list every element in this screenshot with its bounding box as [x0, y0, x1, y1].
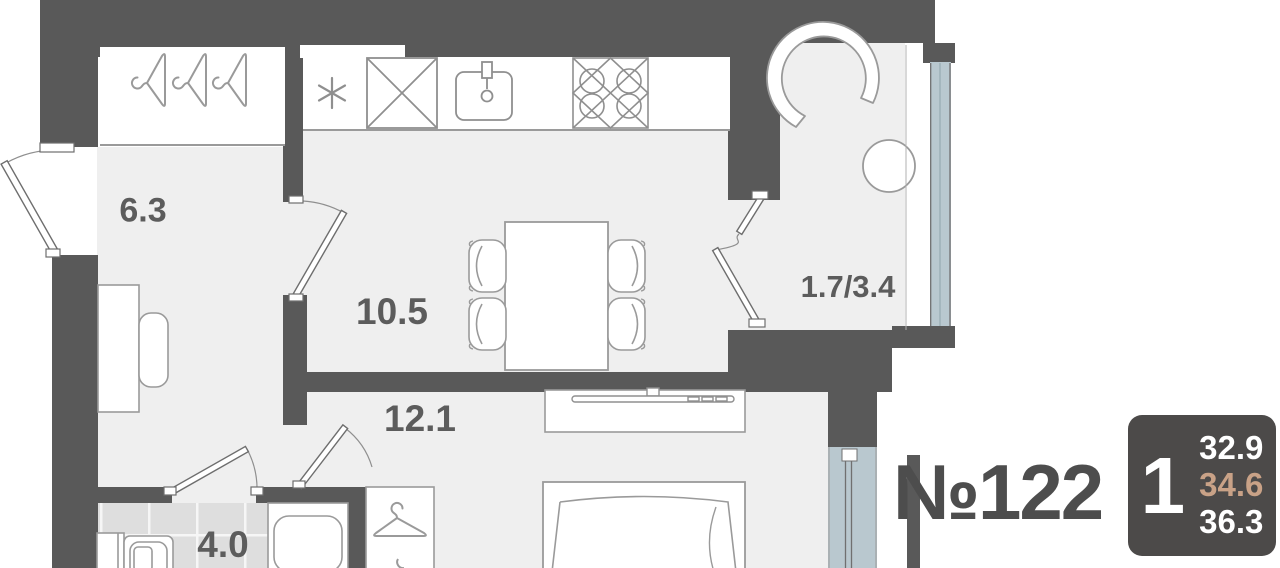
balcony-door	[713, 191, 768, 327]
room-area-label-kitchen: 10.5	[356, 291, 428, 333]
kitchen-counter	[300, 45, 730, 130]
area-middle: 34.6	[1199, 467, 1263, 504]
kitchen-door	[289, 196, 347, 301]
washbasin-icon	[97, 533, 124, 568]
apartment-number: №122	[893, 453, 1102, 531]
area-living: 32.9	[1199, 430, 1263, 467]
rooms-count: 1	[1141, 450, 1186, 522]
bed-icon	[543, 482, 745, 568]
room-door	[293, 425, 372, 489]
round-table-icon	[863, 140, 915, 192]
room-area-label-balcony: 1.7/3.4	[801, 269, 896, 305]
armchair-icon	[767, 22, 879, 127]
bathtub-icon	[268, 503, 348, 568]
room-area-label-bathroom: 4.0	[197, 524, 248, 566]
room-area-label-room: 12.1	[384, 398, 456, 440]
floorplan-canvas: 6.3 10.5 12.1 4.0 1.7/3.4 №122 1 32.9 34…	[0, 0, 1280, 568]
wardrobe-hanger-icon	[366, 487, 434, 568]
washing-machine-icon	[124, 536, 173, 568]
bench-icon	[98, 285, 168, 412]
apartment-info-badge: 1 32.9 34.6 36.3	[1128, 415, 1276, 556]
area-total: 36.3	[1199, 504, 1263, 541]
dining-table-icon	[505, 222, 608, 370]
entrance-door	[1, 143, 74, 257]
bathroom-door	[164, 446, 263, 495]
closet-hangers	[100, 54, 285, 145]
room-area-label-hallway: 6.3	[119, 192, 166, 231]
